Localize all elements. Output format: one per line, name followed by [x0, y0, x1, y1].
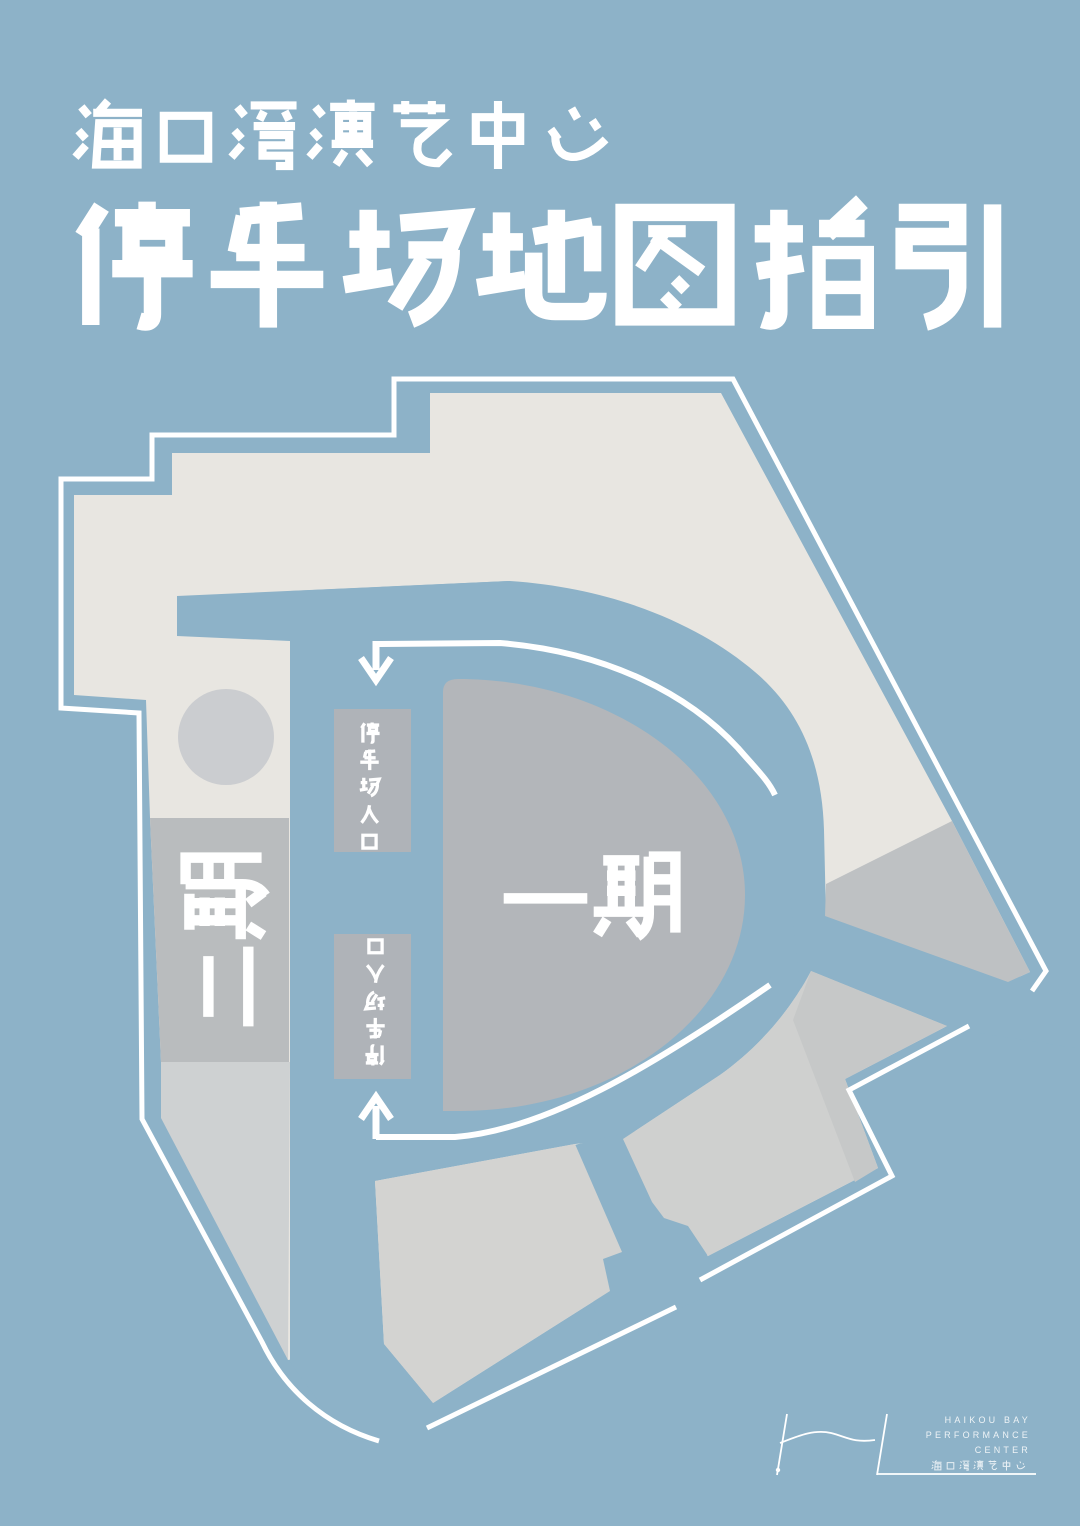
svg-text:PERFORMANCE: PERFORMANCE — [926, 1430, 1031, 1440]
svg-text:HAIKOU BAY: HAIKOU BAY — [945, 1415, 1031, 1425]
svg-text:CENTER: CENTER — [975, 1445, 1031, 1455]
